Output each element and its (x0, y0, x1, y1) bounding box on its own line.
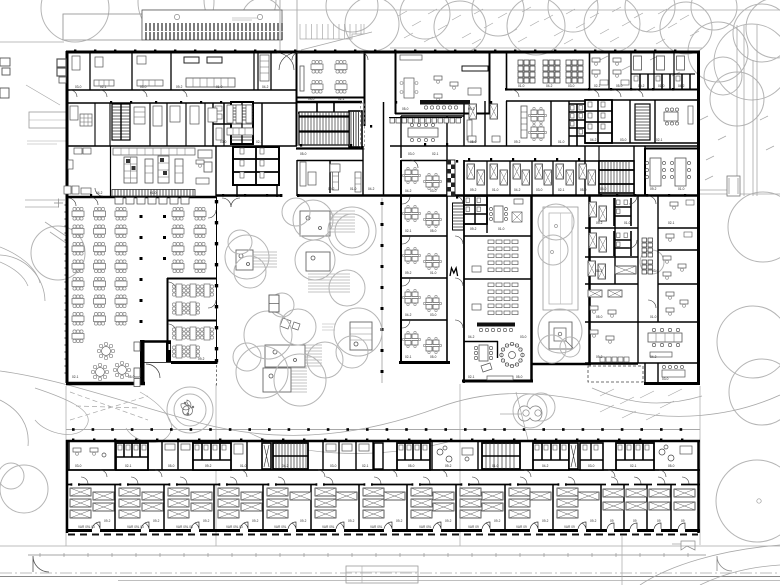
svg-text:03-0: 03-0 (408, 152, 415, 156)
svg-text:03-0: 03-0 (430, 313, 437, 317)
svg-text:09-2: 09-2 (300, 519, 307, 523)
svg-text:09-2: 09-2 (445, 519, 452, 523)
svg-text:02-1: 02-1 (362, 464, 369, 468)
svg-text:05-0: 05-0 (516, 375, 523, 379)
svg-text:09-2: 09-2 (176, 85, 183, 89)
svg-text:05-0: 05-0 (408, 464, 415, 468)
svg-text:VAR 09: VAR 09 (468, 525, 479, 529)
svg-text:04-2: 04-2 (282, 464, 289, 468)
svg-text:01-0: 01-0 (492, 464, 499, 468)
svg-text:01-0: 01-0 (558, 140, 565, 144)
svg-text:05-0: 05-0 (430, 229, 437, 233)
svg-text:VAR 09L 03: VAR 09L 03 (127, 525, 144, 529)
svg-text:03-0: 03-0 (662, 377, 669, 381)
svg-text:04-2: 04-2 (514, 188, 521, 192)
svg-text:03-0: 03-0 (588, 464, 595, 468)
svg-text:09-2: 09-2 (198, 357, 205, 361)
svg-text:04-2: 04-2 (546, 84, 553, 88)
svg-text:09: 09 (657, 519, 661, 523)
svg-text:01-0: 01-0 (240, 464, 247, 468)
svg-text:03-0: 03-0 (220, 140, 227, 144)
svg-text:04-2: 04-2 (368, 187, 375, 191)
svg-text:02-1: 02-1 (558, 188, 565, 192)
svg-text:05-0: 05-0 (140, 85, 147, 89)
svg-text:05-0: 05-0 (668, 464, 675, 468)
svg-text:01-0: 01-0 (518, 84, 525, 88)
svg-text:05-0: 05-0 (616, 84, 623, 88)
svg-text:03-0: 03-0 (568, 84, 575, 88)
svg-text:03-0: 03-0 (330, 464, 337, 468)
svg-text:VAR 09: VAR 09 (516, 525, 527, 529)
svg-text:09: 09 (633, 519, 637, 523)
svg-text:01-0: 01-0 (650, 315, 657, 319)
svg-text:02-1: 02-1 (100, 85, 107, 89)
svg-text:05-0: 05-0 (580, 188, 587, 192)
svg-text:05-0: 05-0 (402, 107, 409, 111)
svg-text:02-1: 02-1 (405, 355, 412, 359)
svg-text:09-2: 09-2 (445, 464, 452, 468)
svg-text:01-0: 01-0 (216, 85, 223, 89)
svg-text:01-0: 01-0 (624, 221, 631, 225)
svg-text:09-2: 09-2 (494, 519, 501, 523)
svg-text:01-0: 01-0 (658, 84, 665, 88)
svg-text:02-1: 02-1 (656, 138, 663, 142)
svg-text:02-1: 02-1 (468, 375, 475, 379)
svg-text:05-0: 05-0 (300, 152, 307, 156)
svg-text:02-1: 02-1 (125, 464, 132, 468)
svg-text:01-0: 01-0 (350, 187, 357, 191)
svg-text:09-2: 09-2 (205, 464, 212, 468)
svg-text:09-2: 09-2 (470, 227, 477, 231)
svg-text:03-0: 03-0 (536, 188, 543, 192)
svg-text:04-2: 04-2 (96, 191, 103, 195)
svg-text:04-2: 04-2 (542, 464, 549, 468)
svg-text:09-2: 09-2 (590, 519, 597, 523)
svg-text:02-1: 02-1 (256, 140, 263, 144)
svg-text:02-1: 02-1 (594, 84, 601, 88)
svg-text:03-0: 03-0 (520, 335, 527, 339)
svg-text:05-0: 05-0 (470, 140, 477, 144)
svg-text:01-0: 01-0 (492, 188, 499, 192)
svg-text:02-1: 02-1 (72, 375, 79, 379)
svg-text:03-0: 03-0 (75, 464, 82, 468)
svg-text:05-0: 05-0 (600, 187, 607, 191)
svg-text:04-2: 04-2 (596, 269, 603, 273)
svg-text:09-2: 09-2 (252, 519, 259, 523)
svg-text:04-2: 04-2 (590, 138, 597, 142)
svg-text:09-2: 09-2 (596, 355, 603, 359)
svg-text:03-0: 03-0 (652, 269, 659, 273)
svg-text:02-1: 02-1 (432, 152, 439, 156)
svg-text:01-0: 01-0 (678, 187, 685, 191)
svg-text:VAR 09: VAR 09 (564, 525, 575, 529)
svg-text:02-1: 02-1 (338, 97, 345, 101)
svg-text:03-0: 03-0 (308, 97, 315, 101)
svg-text:01-0: 01-0 (498, 227, 505, 231)
svg-text:04-2: 04-2 (262, 85, 269, 89)
svg-text:09: 09 (681, 519, 685, 523)
svg-text:05-0: 05-0 (430, 355, 437, 359)
svg-text:VAR 09L: VAR 09L (370, 525, 383, 529)
svg-text:VAR 09L 03: VAR 09L 03 (176, 525, 193, 529)
svg-text:05-0: 05-0 (596, 315, 603, 319)
svg-text:09-2: 09-2 (396, 519, 403, 523)
svg-text:09-2: 09-2 (405, 271, 412, 275)
svg-text:09-2: 09-2 (514, 140, 521, 144)
svg-text:09-2: 09-2 (650, 187, 657, 191)
svg-text:04-2: 04-2 (468, 335, 475, 339)
svg-text:05-0: 05-0 (128, 375, 135, 379)
svg-text:01-0: 01-0 (150, 191, 157, 195)
svg-text:09: 09 (610, 519, 614, 523)
svg-text:05-0: 05-0 (168, 464, 175, 468)
svg-text:VAR 09L: VAR 09L (274, 525, 287, 529)
svg-text:09-2: 09-2 (596, 221, 603, 225)
svg-text:04-2: 04-2 (650, 355, 657, 359)
svg-text:03-0: 03-0 (620, 138, 627, 142)
svg-text:09-2: 09-2 (542, 519, 549, 523)
svg-text:09-2: 09-2 (104, 519, 111, 523)
svg-text:03-0: 03-0 (430, 189, 437, 193)
svg-text:04-2: 04-2 (405, 313, 412, 317)
svg-text:09-2: 09-2 (153, 519, 160, 523)
svg-text:VAR 09L 03: VAR 09L 03 (78, 525, 95, 529)
svg-text:VAR 09L: VAR 09L (322, 525, 335, 529)
svg-text:09-2: 09-2 (470, 188, 477, 192)
svg-text:02-1: 02-1 (405, 229, 412, 233)
svg-text:VAR 09L 03: VAR 09L 03 (226, 525, 243, 529)
svg-text:02-1: 02-1 (630, 464, 637, 468)
svg-text:09-2: 09-2 (638, 84, 645, 88)
svg-text:09-2: 09-2 (203, 519, 210, 523)
svg-text:03-0: 03-0 (75, 85, 82, 89)
svg-text:04-2: 04-2 (405, 189, 412, 193)
svg-text:09-2: 09-2 (328, 187, 335, 191)
svg-text:01-0: 01-0 (430, 271, 437, 275)
svg-text:02-1: 02-1 (668, 221, 675, 225)
svg-text:04-2: 04-2 (678, 84, 685, 88)
svg-text:VAR 09L: VAR 09L (419, 525, 432, 529)
svg-text:09-2: 09-2 (348, 519, 355, 523)
svg-text:09-2: 09-2 (468, 107, 475, 111)
